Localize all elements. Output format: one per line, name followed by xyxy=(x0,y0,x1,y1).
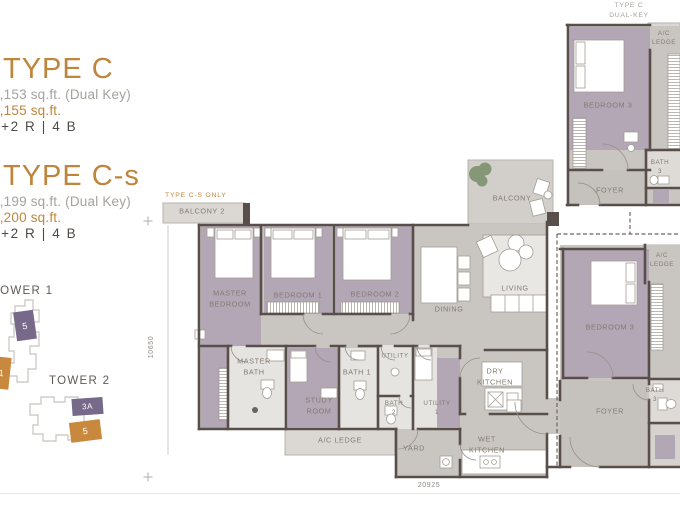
label-study-room: STUDY ROOM xyxy=(305,395,332,416)
label-ac-ledge-bottom: A/C LEDGE xyxy=(318,436,362,447)
mini-label-ac-ledge: A/C LEDGE xyxy=(652,29,676,47)
type-c-summary: TYPE C 2,153 sq.ft. (Dual Key) 2,155 sq.… xyxy=(0,54,222,135)
dimension-width: 20925 xyxy=(418,481,440,491)
label-yard: YARD xyxy=(403,444,425,455)
label-living: LIVING xyxy=(501,284,528,295)
label-foyer: FOYER xyxy=(596,407,624,418)
type-c-title: TYPE C xyxy=(3,54,222,84)
label-balcony2: BALCONY 2 xyxy=(179,207,225,218)
label-ac-ledge-right: A/C LEDGE xyxy=(650,251,674,269)
dimension-height: 10650 xyxy=(147,336,157,358)
label-dining: DINING xyxy=(435,305,464,316)
label-master-bedroom: MASTER BEDROOM xyxy=(209,288,251,309)
label-wet-kitchen: WET KITCHEN xyxy=(469,434,505,455)
dimension-tick-top xyxy=(144,217,153,226)
label-bath3: BATH 3 xyxy=(646,386,665,404)
mini-label-foyer: FOYER xyxy=(596,186,624,197)
tower1-unit5-badge: 5 xyxy=(13,310,37,342)
tower2-unit3a-badge: 3A xyxy=(71,397,103,416)
floorplan-brochure: TYPE C 2,153 sq.ft. (Dual Key) 2,155 sq.… xyxy=(0,0,680,510)
mini-plan-title: TYPE C DUAL-KEY xyxy=(609,1,649,21)
type-c-area: 2,155 sq.ft. xyxy=(0,103,222,119)
label-bedroom3: BEDROOM 3 xyxy=(586,323,635,334)
label-bath2: BATH 2 xyxy=(385,399,404,417)
type-c-area-dualkey: 2,153 sq.ft. (Dual Key) xyxy=(0,87,222,103)
mini-label-bedroom3: BEDROOM 3 xyxy=(584,101,633,112)
tower2-unit5-badge: 5 xyxy=(69,419,102,443)
label-master-bath: MASTER BATH xyxy=(237,356,271,377)
label-utility: UTILITY xyxy=(381,351,408,360)
dimension-tick-bottom xyxy=(144,473,153,482)
label-dry-kitchen: DRY KITCHEN xyxy=(477,366,513,387)
label-bedroom1: BEDROOM 1 xyxy=(274,291,323,302)
label-bath1: BATH 1 xyxy=(343,368,371,379)
label-balcony: BALCONY xyxy=(493,194,532,205)
tower1-label: TOWER 1 xyxy=(0,285,53,297)
type-c-config: 4+2 R | 4 B xyxy=(0,119,222,135)
label-bedroom2: BEDROOM 2 xyxy=(351,290,400,301)
page-divider xyxy=(0,493,680,494)
mini-label-bath3: BATH 3 xyxy=(651,158,670,176)
label-utility1: UTILITY 1 xyxy=(423,399,450,417)
note-type-cs-only: TYPE C-S ONLY xyxy=(165,191,227,201)
tower2-label: TOWER 2 xyxy=(49,375,110,387)
